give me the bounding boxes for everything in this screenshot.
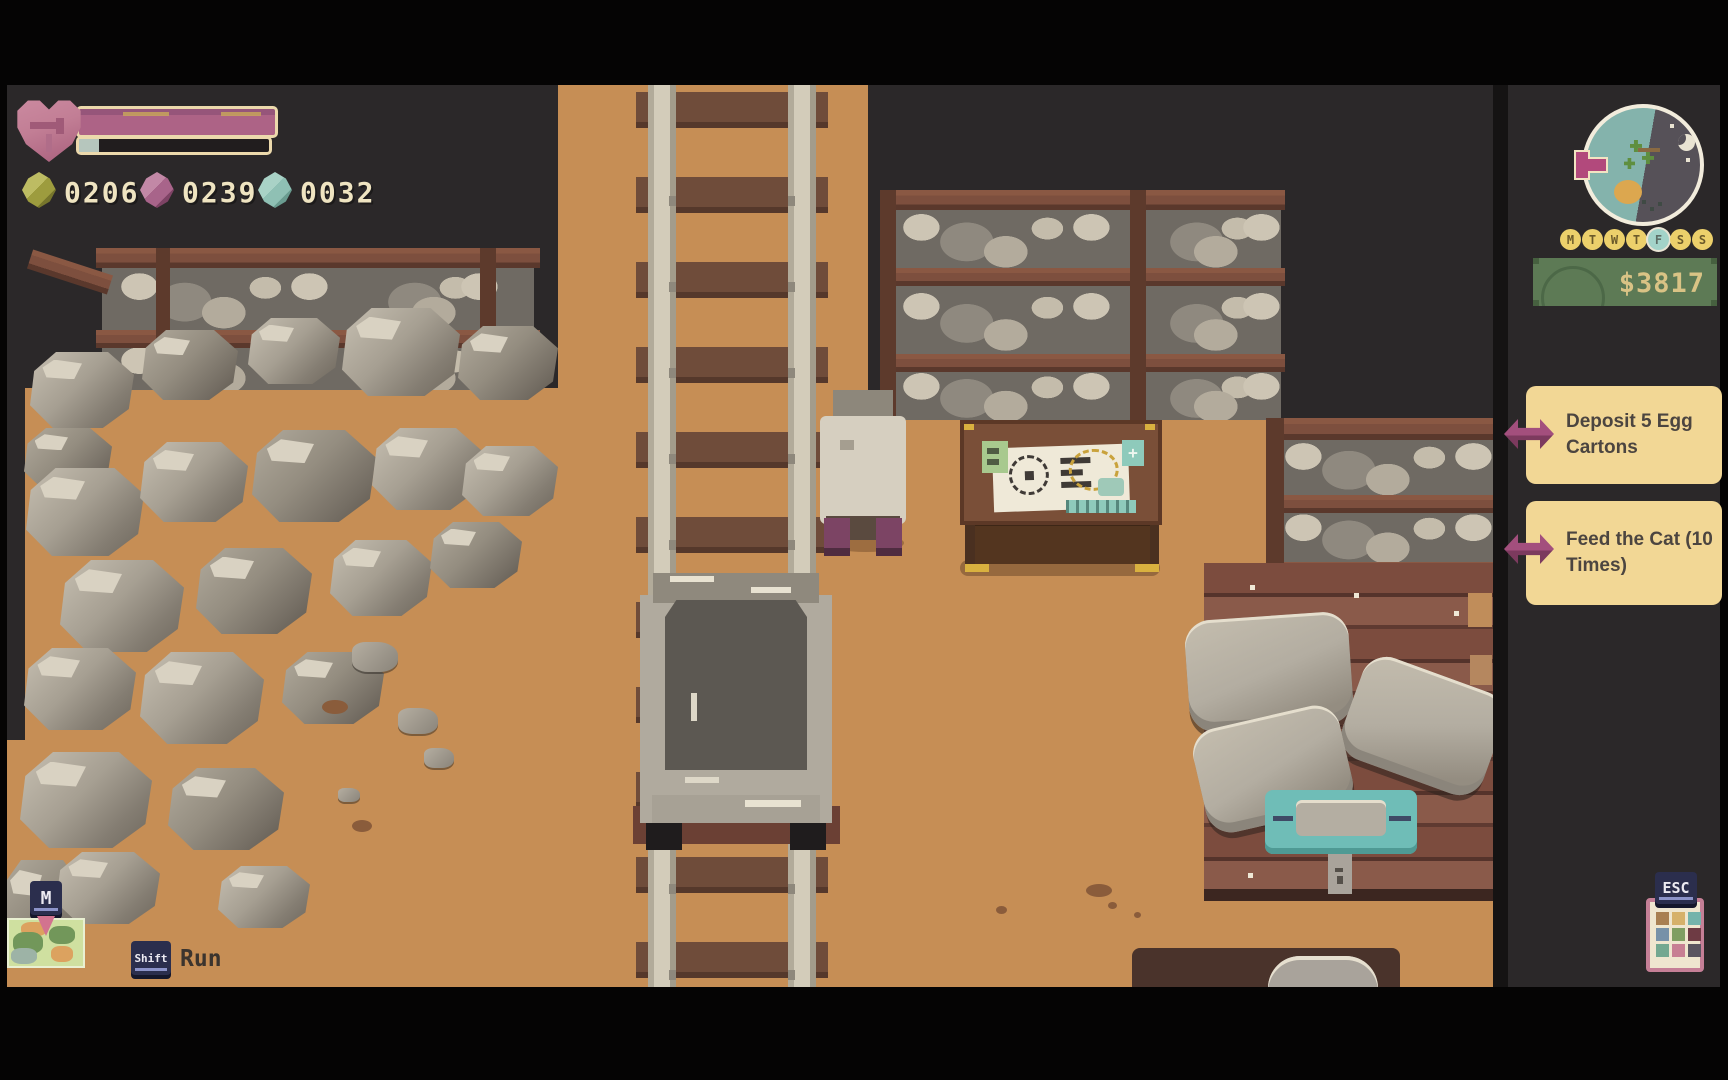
- quest-card-feed-cat[interactable]: Feed the Cat (10 Times): [1526, 501, 1722, 605]
- olive-gem-count: 0206: [64, 176, 139, 209]
- map-key-badge: M: [30, 881, 62, 915]
- day-sat: S: [1670, 229, 1691, 250]
- stamina-fill: [79, 139, 99, 152]
- minecart[interactable]: [633, 573, 840, 858]
- blueprint-table[interactable]: +: [955, 420, 1167, 580]
- boulder: [330, 540, 432, 616]
- pebble: [352, 642, 398, 672]
- boulder: [26, 468, 144, 556]
- coin-watermark-icon: [1541, 266, 1605, 306]
- dirt-spot: [322, 700, 348, 714]
- run-label: Run: [180, 946, 222, 972]
- dirt-spot: [1134, 912, 1141, 918]
- boulder: [20, 752, 152, 848]
- moon-icon: [1678, 134, 1695, 151]
- teal-ruler: [1066, 500, 1136, 513]
- menu-key-badge: ESC: [1655, 872, 1697, 904]
- day-tue: T: [1582, 229, 1603, 250]
- dirt-spot: [352, 820, 372, 832]
- boulder: [342, 308, 460, 396]
- fence-upper-right: [880, 190, 1285, 420]
- boulder: [196, 548, 312, 634]
- boulder: [462, 446, 558, 516]
- pit: [1132, 948, 1400, 988]
- stone-sign[interactable]: [1265, 790, 1417, 894]
- green-card: [982, 441, 1008, 473]
- teal-gem-count: 0032: [300, 176, 375, 209]
- tree-icon: [1624, 158, 1635, 169]
- teal-plus-chip: +: [1122, 440, 1144, 466]
- game-screen: +: [0, 0, 1728, 1080]
- menu-clipboard-icon[interactable]: [1646, 898, 1704, 972]
- scene-edge-shadow: [1493, 85, 1508, 987]
- map-thumbnail[interactable]: [7, 918, 85, 968]
- supply-wagon[interactable]: [818, 390, 910, 560]
- quest-label: Feed the Cat (10 Times): [1566, 527, 1718, 579]
- boulder: [430, 522, 522, 588]
- pink-gem-count: 0239: [182, 176, 257, 209]
- pebble: [398, 708, 438, 734]
- letterbox-bottom: [0, 987, 1728, 1080]
- day-sun: S: [1692, 229, 1713, 250]
- player-marker-flag-icon: [1576, 152, 1606, 182]
- stamina-bar: [76, 136, 272, 155]
- letterbox-left: [0, 85, 7, 987]
- day-mon: M: [1560, 229, 1581, 250]
- day-fri-active: F: [1648, 229, 1669, 250]
- dirt-spot: [996, 906, 1007, 914]
- health-bar: [76, 106, 278, 138]
- run-key-badge: Shift: [131, 941, 171, 975]
- day-thu: T: [1626, 229, 1647, 250]
- day-wed: W: [1604, 229, 1625, 250]
- dirt-spot: [1086, 884, 1112, 897]
- mine-scene: +: [0, 0, 1728, 1080]
- dirt-spot: [1108, 902, 1117, 909]
- money-amount: $3817: [1619, 268, 1705, 299]
- tree-icon: [1642, 152, 1654, 164]
- quest-label: Deposit 5 Egg Cartons: [1566, 409, 1718, 461]
- pebble: [424, 748, 454, 768]
- letterbox-top: [0, 0, 1728, 85]
- money-box: $3817: [1533, 258, 1717, 306]
- pond-icon: [1614, 180, 1642, 204]
- quest-card-deposit-eggs[interactable]: Deposit 5 Egg Cartons: [1526, 386, 1722, 484]
- boulder: [458, 326, 558, 400]
- pebble: [338, 788, 360, 802]
